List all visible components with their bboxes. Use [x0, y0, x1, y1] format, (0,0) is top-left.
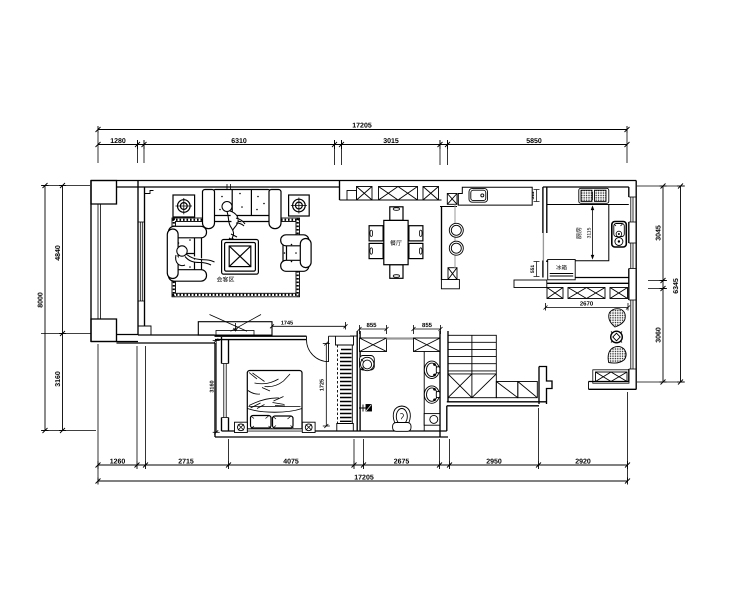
svg-text:551: 551: [530, 265, 536, 274]
svg-text:2670: 2670: [580, 301, 594, 308]
svg-text:1260: 1260: [110, 459, 126, 466]
svg-text:5850: 5850: [526, 138, 542, 145]
svg-text:3015: 3015: [383, 138, 399, 145]
svg-text:855: 855: [422, 322, 433, 329]
svg-text:1725: 1725: [320, 379, 326, 391]
svg-text:4840: 4840: [55, 245, 62, 261]
svg-text:8000: 8000: [38, 292, 45, 308]
svg-text:3160: 3160: [55, 371, 62, 387]
svg-text:会客区: 会客区: [216, 276, 234, 284]
svg-text:冰箱: 冰箱: [556, 265, 568, 272]
svg-text:餐厅: 餐厅: [390, 239, 402, 247]
svg-text:2715: 2715: [178, 459, 194, 466]
svg-text:855: 855: [366, 322, 377, 329]
svg-text:2950: 2950: [486, 459, 502, 466]
svg-text:3060: 3060: [656, 327, 663, 343]
svg-text:6310: 6310: [231, 138, 247, 145]
svg-text:1745: 1745: [281, 320, 293, 326]
svg-text:3115: 3115: [587, 227, 593, 238]
svg-text:17205: 17205: [354, 475, 374, 482]
svg-text:2920: 2920: [575, 459, 591, 466]
svg-text:6345: 6345: [673, 278, 680, 294]
svg-text:17205: 17205: [352, 123, 372, 130]
svg-text:1280: 1280: [110, 138, 126, 145]
svg-text:3160: 3160: [210, 380, 216, 392]
svg-text:厨房: 厨房: [575, 227, 583, 239]
svg-text:2675: 2675: [394, 459, 410, 466]
svg-text:4075: 4075: [283, 459, 299, 466]
svg-text:3045: 3045: [656, 225, 663, 241]
